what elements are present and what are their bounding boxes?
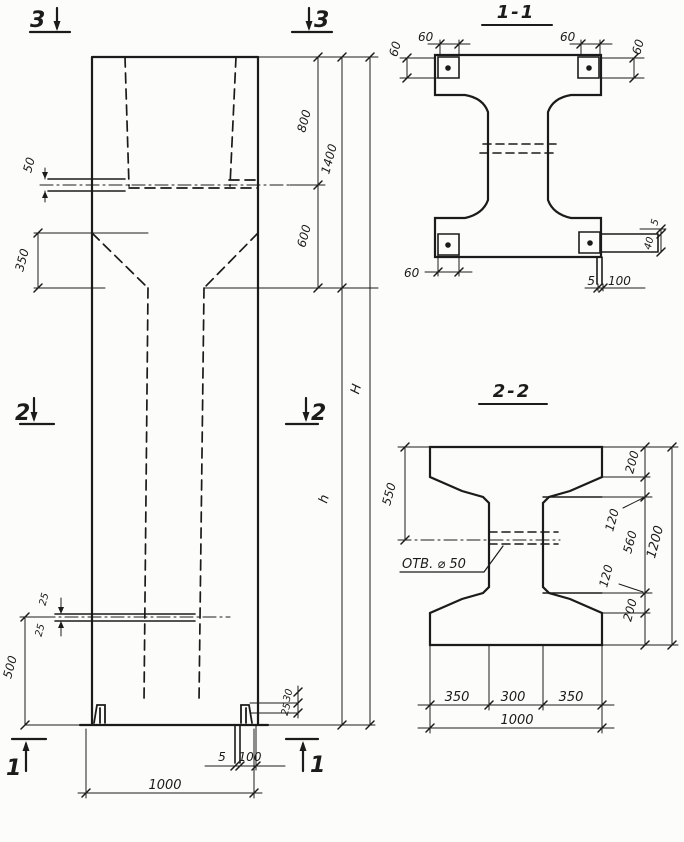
dim-top-zone-label: 800: [294, 108, 314, 134]
dim-section-width-label: 1000: [500, 713, 533, 728]
hole-diameter-label: ОТВ. ⌀ 50: [402, 557, 466, 572]
dim-total-height-label: H: [348, 382, 365, 396]
hole-centerlines: [40, 185, 290, 617]
dim-taper-top-label: 120: [602, 507, 622, 533]
hidden-lines: [92, 57, 258, 702]
drawing-sheet: 3 3 2 2 1 1 50 350 800 600 1400 h H 500 …: [0, 0, 684, 842]
dim-overhang-left-label: 350: [445, 690, 470, 705]
section-marker-2-left: 2: [15, 401, 30, 426]
dim-plate-tr-w-label: 60: [560, 30, 576, 44]
technical-drawing: 3 3 2 2 1 1 50 350 800 600 1400 h H 500 …: [0, 0, 684, 842]
dim-side-gap-label: 5: [649, 218, 661, 227]
dim-hole-offset-lower-label: 25: [34, 623, 48, 638]
section-marker-arrowheads: [23, 21, 313, 751]
dim-haunch-label: 350: [12, 247, 32, 273]
section-marker-1-bottom-left: 1: [6, 756, 21, 781]
dim-capital-total-label: 1400: [318, 142, 340, 175]
dim-section-height-label: 1200: [644, 524, 667, 560]
section-2-2-dimension-lines: [398, 447, 678, 733]
section-1-1-view: 1-1 60 60 60 60 60 5 100 5 40: [386, 2, 666, 292]
dim-web-width-label: 300: [501, 690, 526, 705]
section-marker-3-top-right: 3: [314, 8, 329, 33]
dim-taper-bottom-label: 120: [596, 563, 616, 589]
dim-column-width-label: 1000: [148, 778, 181, 793]
dim-capital-hole-label: 50: [20, 155, 38, 174]
dim-flange-top-label: 200: [622, 449, 642, 475]
dim-corner-upper-label: 30: [282, 688, 296, 703]
dim-side-leg-label: 40: [643, 236, 657, 251]
dim-overhang-right-label: 350: [559, 690, 584, 705]
section-2-2-title: 2-2: [493, 381, 532, 402]
dim-plate-width-label: 100: [239, 750, 262, 764]
elevation-view: 3 3 2 2 1 1 50 350 800 600 1400 h H 500 …: [0, 8, 378, 798]
dimension-arrowheads: [42, 172, 64, 628]
dim-plate-tr-h-label: 60: [629, 37, 647, 56]
dim-plate-tl-h-label: 60: [386, 39, 404, 58]
dim-hole-offset-upper-label: 25: [38, 592, 52, 607]
dim-plate-bl-w-label: 60: [404, 266, 420, 280]
dim-plate-br-w-label: 100: [608, 274, 631, 288]
dim-web-clear-label: 560: [620, 529, 640, 555]
section-2-2-ticks: [401, 443, 676, 732]
plate-anchor-dots: [445, 65, 593, 248]
dim-top-to-hole-label: 550: [379, 481, 399, 507]
dim-plate-thickness-label: 5: [218, 750, 226, 764]
dim-shaft-height-label: h: [316, 493, 333, 505]
section-1-1-title: 1-1: [497, 2, 536, 23]
section-2-2-outline: [430, 447, 602, 645]
hole-lines: [48, 179, 195, 621]
section-2-2-inner-lines: [543, 497, 602, 593]
section-marker-2-right: 2: [311, 401, 326, 426]
dim-plate-tl-w-label: 60: [418, 30, 434, 44]
column-outline: [80, 57, 268, 725]
dim-corner-lower-label: 25: [280, 702, 294, 717]
dim-flange-bottom-label: 200: [620, 597, 640, 623]
dim-plate-br-t-label: 5: [587, 274, 595, 288]
section-2-2-view: 2-2 ОТВ. ⌀ 50 550 200 120 560 120 200 12…: [379, 381, 678, 733]
section-2-2-hole-dashes: [489, 532, 558, 544]
dim-base-zone-label: 500: [0, 654, 20, 680]
section-marker-lines: [12, 8, 332, 771]
section-1-1-outline: [435, 55, 601, 257]
dim-taper-zone-label: 600: [294, 223, 314, 249]
section-1-1-web-hole-dashes: [480, 144, 557, 153]
section-marker-1-bottom-right: 1: [310, 753, 325, 778]
base-corner-feet: [94, 705, 252, 723]
section-marker-3-top-left: 3: [30, 8, 45, 33]
